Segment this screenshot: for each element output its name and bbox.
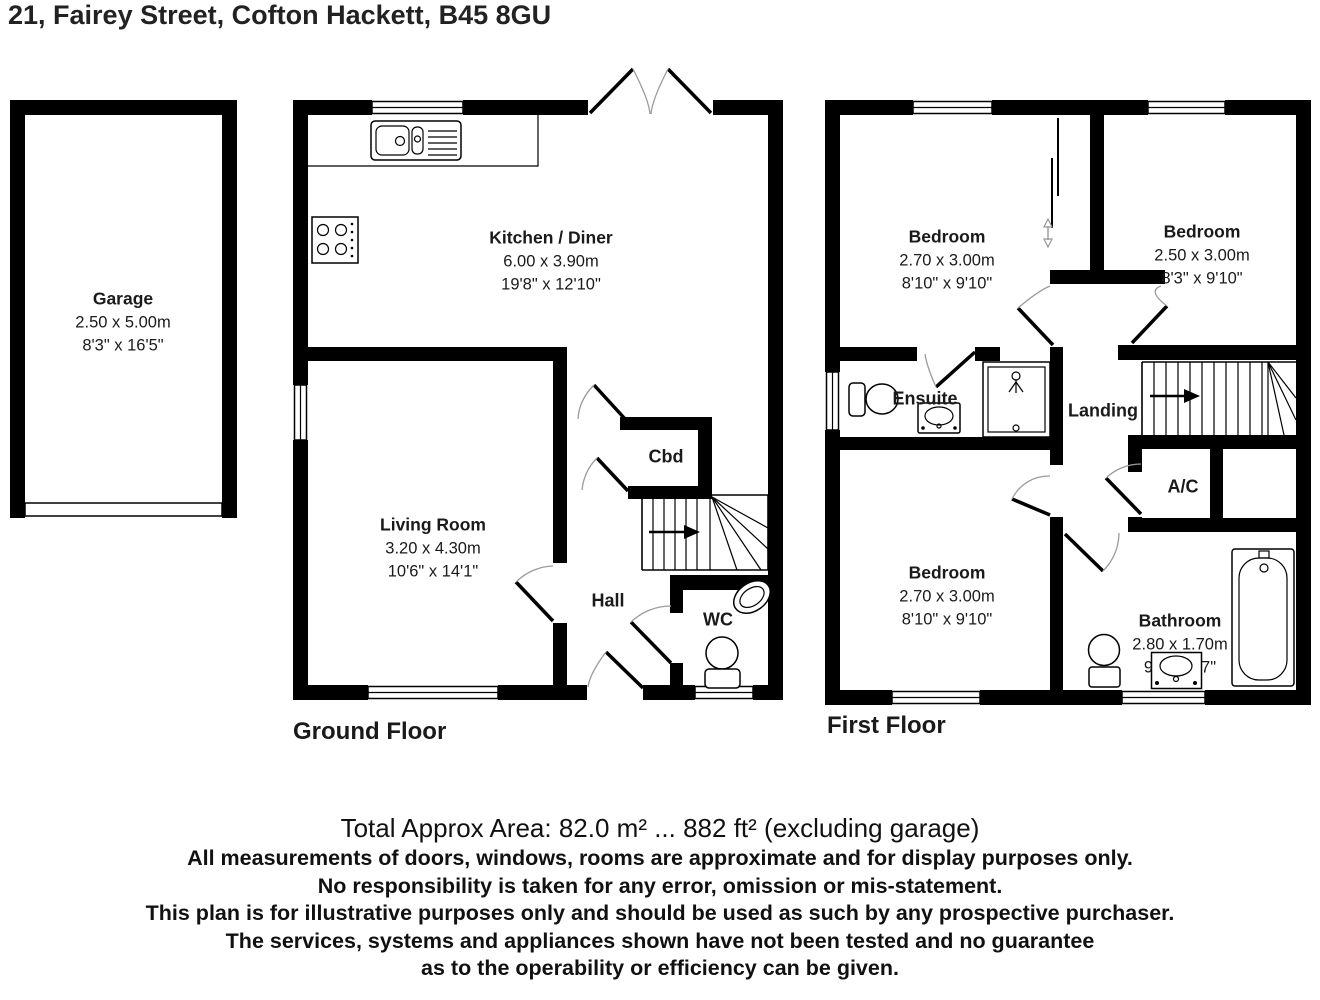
ground-floor-windows <box>295 102 754 699</box>
footer: Total Approx Area: 82.0 m² ... 882 ft² (… <box>0 811 1320 983</box>
room-label-landing: Landing <box>1068 398 1138 423</box>
stairs-up-arrow-first <box>1150 389 1200 403</box>
room-label-hall: Hall <box>591 588 624 613</box>
garage-door <box>25 503 222 516</box>
room-label-cbd: Cbd <box>649 444 684 469</box>
wc-sink-tap <box>766 581 770 585</box>
bath-symbol <box>1232 549 1294 686</box>
total-area-line: Total Approx Area: 82.0 m² ... 882 ft² (… <box>0 811 1320 845</box>
room-label-ac: A/C <box>1168 474 1199 499</box>
bathroom-toilet-symbol <box>1089 635 1121 688</box>
room-label-bedroom-top-right: Bedroom 2.50 x 3.00m 8'3" x 9'10" <box>1154 220 1249 291</box>
ground-floor-caption: Ground Floor <box>293 718 446 746</box>
kitchen-sink-symbol <box>371 121 461 160</box>
room-label-garage: Garage 2.50 x 5.00m 8'3" x 16'5" <box>75 287 170 358</box>
disclaimer-line: This plan is for illustrative purposes o… <box>0 900 1320 928</box>
hob-symbol <box>312 217 358 263</box>
first-floor-stairs <box>1142 362 1296 435</box>
sliding-door-lines <box>1044 118 1058 247</box>
room-label-kitchen-diner: Kitchen / Diner 6.00 x 3.90m 19'8" x 12'… <box>489 226 613 297</box>
sliding-arrow-icon <box>1044 219 1052 247</box>
room-label-bedroom-top-left: Bedroom 2.70 x 3.00m 8'10" x 9'10" <box>899 225 994 296</box>
ground-floor-stairs <box>642 495 768 570</box>
bathroom-sink-symbol <box>1150 651 1204 691</box>
disclaimer-line: The services, systems and appliances sho… <box>0 928 1320 956</box>
shower-symbol <box>983 362 1050 437</box>
floor-plan-drawing <box>0 0 1320 790</box>
room-label-living-room: Living Room 3.20 x 4.30m 10'6" x 14'1" <box>380 513 486 584</box>
room-label-wc: WC <box>703 607 733 632</box>
wc-toilet-symbol <box>705 637 740 688</box>
room-label-ensuite: Ensuite <box>892 386 957 411</box>
disclaimer-line: All measurements of doors, windows, room… <box>0 845 1320 873</box>
room-label-bedroom-bottom: Bedroom 2.70 x 3.00m 8'10" x 9'10" <box>899 561 994 632</box>
ensuite-toilet-symbol <box>849 383 898 416</box>
first-floor-caption: First Floor <box>827 712 946 740</box>
disclaimer-line: No responsibility is taken for any error… <box>0 873 1320 901</box>
disclaimer-line: as to the operability or efficiency can … <box>0 955 1320 983</box>
